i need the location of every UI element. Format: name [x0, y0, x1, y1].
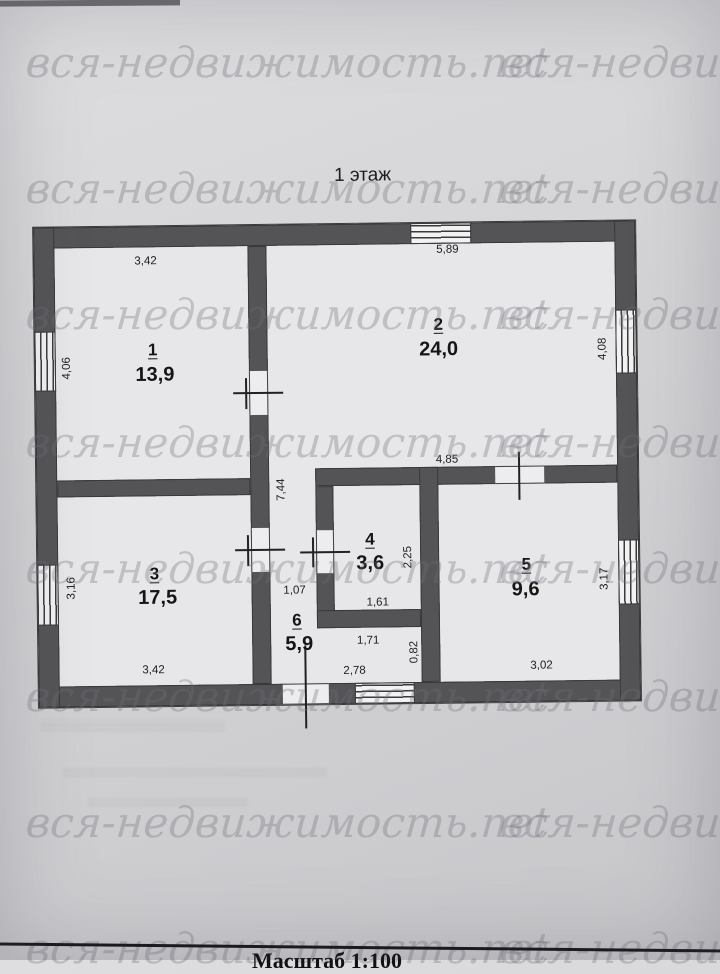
watermark-text: вся-недвижимость.net	[24, 290, 551, 339]
room-6-area: 5,9	[285, 633, 313, 656]
watermark-text: вся-недвижимость.net	[498, 290, 720, 339]
wall-room4-bottom	[317, 609, 421, 628]
watermark-text: вся-недвижимость.net	[24, 418, 551, 467]
room-2-area: 24,0	[419, 338, 458, 361]
watermark-text: вся-недвижимость.net	[498, 544, 720, 593]
dim-room5-bottom: 3,02	[530, 659, 553, 671]
watermark-text: вся-недвижимость.net	[24, 798, 551, 847]
scale-label: Масштаб 1:100	[252, 948, 402, 974]
dim-hall-mid: 1,71	[357, 635, 380, 647]
watermark-text: вся-недвижимость.net	[24, 672, 551, 721]
watermark-text: вся-недвижимость.net	[498, 672, 720, 721]
room-6-number: 6	[292, 610, 302, 630]
watermark-text: вся-недвижимость.net	[498, 798, 720, 847]
door-room1-tick	[245, 378, 247, 409]
watermark-text: вся-недвижимость.net	[498, 418, 720, 467]
dim-room4-bottom: 1,61	[366, 596, 389, 608]
watermark-text: вся-недвижимость.net	[24, 544, 551, 593]
watermark-text: вся-недвижимость.net	[24, 164, 551, 213]
wall-room1-room3-divider	[57, 478, 250, 497]
watermark-text: вся-недвижимость.net	[498, 38, 720, 87]
dim-room2-right: 4,08	[597, 338, 609, 361]
dim-room1-left: 4,06	[61, 357, 73, 380]
room-1-number: 1	[148, 340, 158, 360]
window-room2-top	[410, 222, 471, 244]
watermark-text: вся-недвижимость.net	[498, 164, 720, 213]
dim-room2-top: 5,89	[436, 244, 459, 256]
dim-corridor-vertical: 7,44	[275, 478, 287, 501]
dim-room1-top: 3,42	[134, 255, 157, 267]
watermark-text: вся-недвижимость.net	[24, 38, 551, 87]
room-1-area: 13,9	[135, 364, 174, 387]
window-room1-left	[34, 331, 56, 391]
dim-hall-right: 0,82	[408, 641, 420, 664]
wall-room2-bottom	[315, 465, 617, 487]
